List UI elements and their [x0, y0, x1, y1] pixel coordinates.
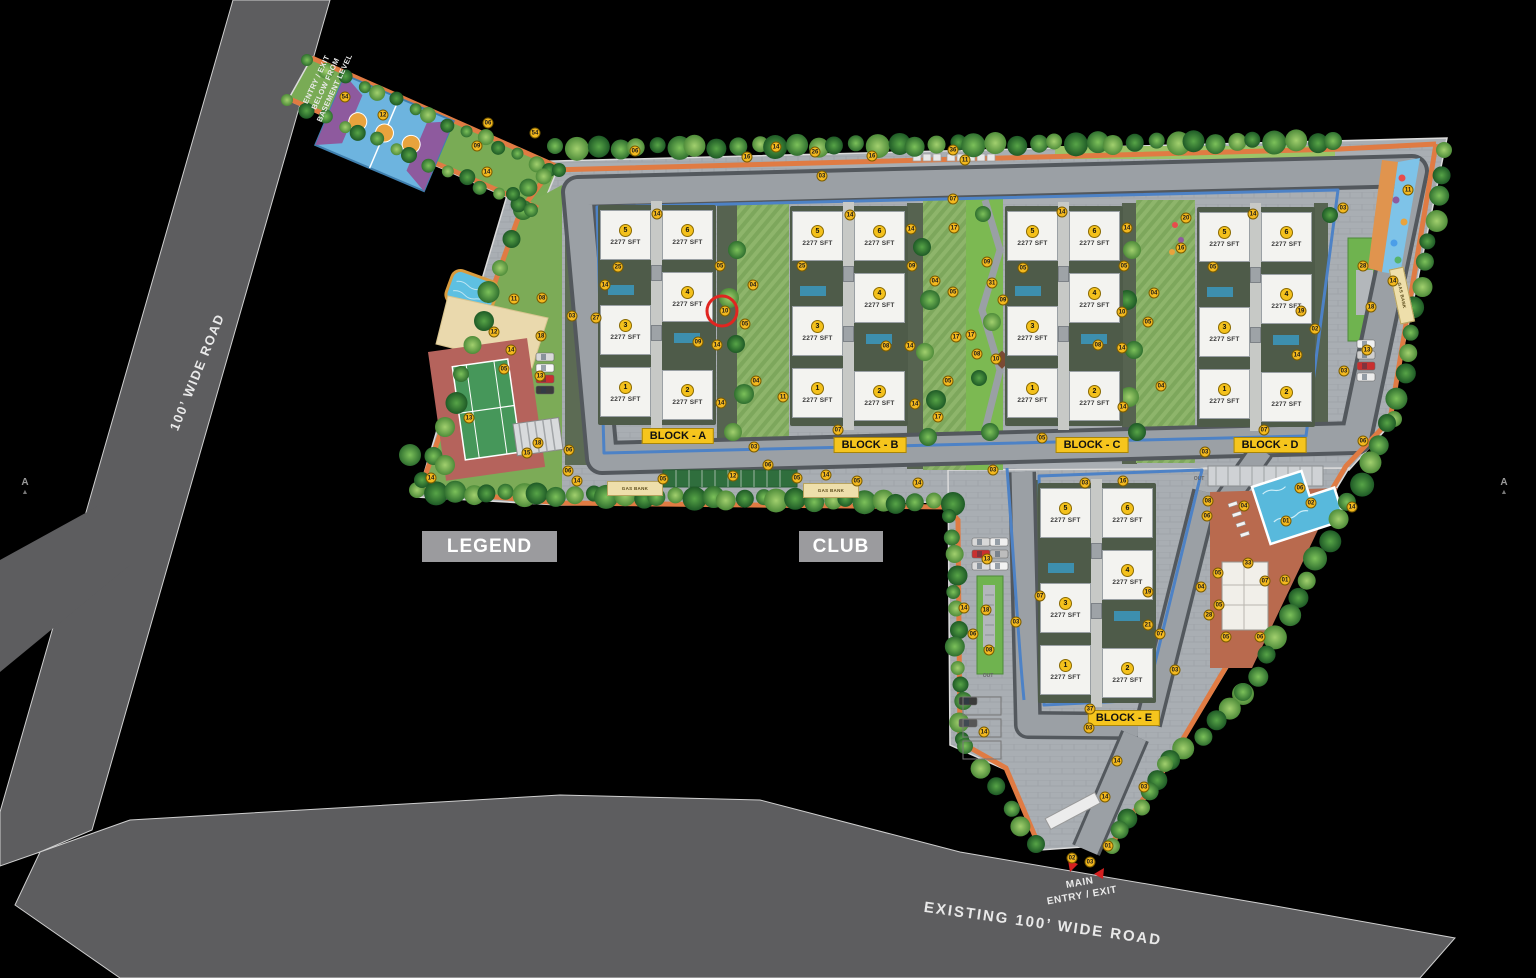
unit-area: 2277 SFT: [1271, 241, 1301, 248]
legend-marker-05: 05: [948, 287, 959, 298]
legend-marker-03: 03: [1339, 366, 1350, 377]
unit-number: 6: [1280, 226, 1293, 239]
legend-marker-03: 03: [1080, 478, 1091, 489]
legend-marker-04: 04: [1196, 582, 1207, 593]
unit-area: 2277 SFT: [1209, 241, 1239, 248]
unit-area: 2277 SFT: [1112, 579, 1142, 586]
block-A: 52277 SFT62277 SFT32277 SFT42277 SFT1227…: [598, 205, 716, 425]
unit-A-1: 12277 SFT: [600, 367, 651, 417]
lift-core: [1250, 327, 1261, 343]
legend-marker-08: 08: [881, 341, 892, 352]
unit-number: 4: [1280, 288, 1293, 301]
lift-core: [651, 265, 662, 281]
legend-marker-26: 26: [810, 147, 821, 158]
block-B: 52277 SFT62277 SFT32277 SFT42277 SFT1227…: [790, 206, 908, 426]
legend-marker-14: 14: [913, 478, 924, 489]
legend-marker-14: 14: [506, 345, 517, 356]
legend-marker-05: 05: [1119, 261, 1130, 272]
legend-marker-14: 14: [905, 341, 916, 352]
legend-marker-14: 14: [1248, 209, 1259, 220]
lift-core: [1058, 326, 1069, 342]
left-road: [0, 0, 330, 866]
legend-marker-17: 17: [951, 332, 962, 343]
unit-B-2: 22277 SFT: [854, 371, 905, 421]
legend-marker-14: 14: [1388, 276, 1399, 287]
unit-B-1: 12277 SFT: [792, 368, 843, 418]
legend-marker-04: 04: [751, 376, 762, 387]
legend-marker-06: 06: [563, 466, 574, 477]
legend-marker-05: 05: [1208, 262, 1219, 273]
legend-marker-16: 16: [867, 151, 878, 162]
unit-area: 2277 SFT: [1050, 517, 1080, 524]
legend-marker-13: 13: [1362, 345, 1373, 356]
legend-marker-21: 21: [1143, 620, 1154, 631]
legend-marker-07: 07: [1259, 425, 1270, 436]
block-corridor: [843, 202, 854, 430]
legend-marker-14: 14: [600, 280, 611, 291]
unit-number: 5: [1026, 225, 1039, 238]
legend-marker-03: 03: [1084, 723, 1095, 734]
unit-area: 2277 SFT: [1050, 612, 1080, 619]
legend-marker-17: 17: [949, 223, 960, 234]
unit-area: 2277 SFT: [1112, 677, 1142, 684]
unit-D-2: 22277 SFT: [1261, 372, 1312, 422]
highlight-circle: [706, 295, 739, 328]
legend-marker-18: 18: [536, 331, 547, 342]
legend-marker-08: 08: [1093, 340, 1104, 351]
legend-marker-09: 09: [998, 295, 1009, 306]
legend-marker-13: 13: [464, 413, 475, 424]
legend-marker-03: 03: [1200, 447, 1211, 458]
unit-area: 2277 SFT: [672, 239, 702, 246]
legend-marker-06: 06: [630, 146, 641, 157]
legend-marker-06: 06: [483, 118, 494, 129]
legend-marker-03: 03: [1085, 857, 1096, 868]
water-feature: [800, 286, 826, 296]
legend-marker-02: 02: [1067, 853, 1078, 864]
water-feature: [1207, 287, 1233, 297]
unit-number: 1: [1059, 659, 1072, 672]
unit-number: 3: [1026, 320, 1039, 333]
legend-marker-12: 12: [728, 471, 739, 482]
unit-number: 2: [1280, 386, 1293, 399]
legend-marker-03: 03: [1139, 782, 1150, 793]
legend-marker-20: 20: [1181, 213, 1192, 224]
legend-marker-06: 06: [564, 445, 575, 456]
legend-marker-11: 11: [1403, 185, 1414, 196]
unit-D-4: 42277 SFT: [1261, 274, 1312, 324]
unit-number: 4: [1121, 564, 1134, 577]
water-feature: [1114, 611, 1140, 621]
legend-marker-11: 11: [509, 294, 520, 305]
lift-core: [1091, 543, 1102, 559]
unit-area: 2277 SFT: [672, 301, 702, 308]
legend-marker-05: 05: [740, 319, 751, 330]
club-box[interactable]: CLUB: [799, 531, 883, 562]
legend-marker-04: 04: [748, 280, 759, 291]
legend-marker-25: 25: [613, 262, 624, 273]
out-label-2: OUT: [1194, 476, 1205, 482]
unit-B-4: 42277 SFT: [854, 273, 905, 323]
legend-marker-19: 19: [1296, 306, 1307, 317]
legend-marker-07: 07: [833, 425, 844, 436]
legend-marker-06: 06: [1358, 436, 1369, 447]
unit-D-6: 62277 SFT: [1261, 212, 1312, 262]
unit-number: 5: [619, 224, 632, 237]
lift-core: [843, 326, 854, 342]
legend-marker-14: 14: [652, 209, 663, 220]
unit-area: 2277 SFT: [672, 399, 702, 406]
legend-marker-06: 06: [968, 629, 979, 640]
unit-area: 2277 SFT: [610, 239, 640, 246]
unit-area: 2277 SFT: [1112, 517, 1142, 524]
lift-core: [1091, 603, 1102, 619]
unit-area: 2277 SFT: [802, 335, 832, 342]
unit-number: 5: [1218, 226, 1231, 239]
gas-bank-2: GAS BANK: [803, 483, 859, 498]
legend-marker-14: 14: [712, 340, 723, 351]
water-feature: [608, 285, 634, 295]
unit-number: 6: [1088, 225, 1101, 238]
legend-marker-03: 03: [988, 465, 999, 476]
legend-marker-16: 16: [1176, 243, 1187, 254]
unit-B-6: 62277 SFT: [854, 211, 905, 261]
legend-marker-08: 08: [1203, 496, 1214, 507]
lift-core: [843, 266, 854, 282]
legend-marker-06: 06: [1255, 632, 1266, 643]
legend-marker-14: 14: [821, 470, 832, 481]
section-marker-right: A ▲: [1500, 478, 1507, 496]
block-corridor: [1091, 479, 1102, 707]
legend-marker-05: 05: [1213, 568, 1224, 579]
legend-marker-04: 04: [1156, 381, 1167, 392]
legend-marker-27: 27: [591, 313, 602, 324]
lift-core: [651, 325, 662, 341]
legend-marker-08: 08: [972, 349, 983, 360]
legend-marker-04: 04: [1149, 288, 1160, 299]
legend-marker-08: 08: [984, 645, 995, 656]
block-corridor: [1058, 202, 1069, 430]
site-plan-base: [0, 0, 1536, 978]
unit-area: 2277 SFT: [1079, 400, 1109, 407]
unit-area: 2277 SFT: [864, 400, 894, 407]
legend-marker-03: 03: [1170, 665, 1181, 676]
unit-area: 2277 SFT: [1017, 240, 1047, 247]
unit-E-5: 52277 SFT: [1040, 488, 1091, 538]
unit-D-1: 12277 SFT: [1199, 369, 1250, 419]
out-label-1: OUT: [983, 673, 994, 679]
legend-marker-19: 19: [1143, 587, 1154, 598]
unit-area: 2277 SFT: [864, 240, 894, 247]
legend-marker-10: 10: [1117, 307, 1128, 318]
section-arrow-icon: ▲: [1500, 489, 1507, 496]
legend-marker-14: 14: [1117, 343, 1128, 354]
legend-marker-05: 05: [852, 476, 863, 487]
unit-number: 1: [619, 381, 632, 394]
legend-marker-05: 05: [1143, 317, 1154, 328]
legend-marker-25: 25: [797, 261, 808, 272]
legend-marker-04: 04: [1239, 501, 1250, 512]
unit-number: 2: [681, 384, 694, 397]
legend-marker-12: 12: [378, 110, 389, 121]
legend-marker-14: 14: [771, 142, 782, 153]
legend-marker-02: 02: [1310, 324, 1321, 335]
legend-marker-18: 18: [533, 438, 544, 449]
unit-number: 2: [1121, 662, 1134, 675]
club-building: [1222, 562, 1268, 630]
water-feature: [1273, 335, 1299, 345]
unit-area: 2277 SFT: [1017, 335, 1047, 342]
lift-core: [1058, 266, 1069, 282]
legend-marker-01: 01: [1103, 841, 1114, 852]
legend-marker-07: 07: [948, 194, 959, 205]
legend-marker-12: 12: [489, 327, 500, 338]
lawn-strip-cd: [1136, 200, 1195, 463]
legend-marker-06: 06: [763, 460, 774, 471]
unit-A-2: 22277 SFT: [662, 370, 713, 420]
legend-marker-09: 09: [693, 337, 704, 348]
unit-D-3: 32277 SFT: [1199, 307, 1250, 357]
legend-marker-14: 14: [1100, 792, 1111, 803]
block-label-D: BLOCK - D: [1234, 437, 1307, 453]
legend-marker-37: 37: [1085, 704, 1096, 715]
unit-number: 6: [1121, 502, 1134, 515]
legend-marker-05: 05: [658, 474, 669, 485]
legend-marker-09: 09: [472, 141, 483, 152]
legend-marker-14: 14: [426, 473, 437, 484]
unit-area: 2277 SFT: [1209, 336, 1239, 343]
legend-marker-06: 06: [1295, 483, 1306, 494]
legend-marker-28: 28: [1204, 610, 1215, 621]
legend-marker-13: 13: [982, 554, 993, 565]
legend-marker-54: 54: [530, 128, 541, 139]
legend-marker-14: 14: [910, 399, 921, 410]
block-D: 52277 SFT62277 SFT32277 SFT42277 SFT1227…: [1197, 207, 1315, 427]
legend-marker-16: 16: [742, 152, 753, 163]
legend-marker-02: 02: [1306, 498, 1317, 509]
unit-D-5: 52277 SFT: [1199, 212, 1250, 262]
unit-area: 2277 SFT: [802, 240, 832, 247]
legend-marker-54: 54: [340, 92, 351, 103]
unit-number: 2: [873, 385, 886, 398]
unit-area: 2277 SFT: [610, 334, 640, 341]
unit-A-5: 52277 SFT: [600, 210, 651, 260]
legend-marker-14: 14: [482, 167, 493, 178]
legend-marker-10: 10: [991, 354, 1002, 365]
legend-marker-14: 14: [1057, 207, 1068, 218]
legend-marker-16: 16: [1118, 476, 1129, 487]
block-corridor: [651, 201, 662, 429]
legend-marker-11: 11: [960, 155, 971, 166]
unit-A-3: 32277 SFT: [600, 305, 651, 355]
legend-marker-05: 05: [715, 261, 726, 272]
legend-marker-14: 14: [572, 476, 583, 487]
unit-C-1: 12277 SFT: [1007, 368, 1058, 418]
legend-marker-06: 06: [1202, 511, 1213, 522]
unit-number: 5: [811, 225, 824, 238]
unit-area: 2277 SFT: [1079, 240, 1109, 247]
club-label: CLUB: [813, 536, 870, 558]
site-plan: 100’ WIDE ROAD EXISTING 100’ WIDE ROAD E…: [0, 0, 1536, 978]
water-feature: [1015, 286, 1041, 296]
unit-number: 4: [873, 287, 886, 300]
legend-marker-14: 14: [1118, 402, 1129, 413]
legend-marker-14: 14: [845, 210, 856, 221]
unit-number: 3: [1218, 321, 1231, 334]
unit-E-3: 32277 SFT: [1040, 583, 1091, 633]
legend-marker-18: 18: [1366, 302, 1377, 313]
block-label-E: BLOCK - E: [1088, 710, 1160, 726]
legend-marker-07: 07: [1035, 591, 1046, 602]
legend-marker-03: 03: [1338, 203, 1349, 214]
legend-marker-05: 05: [943, 376, 954, 387]
water-feature: [1048, 563, 1074, 573]
legend-marker-07: 07: [1155, 629, 1166, 640]
legend-marker-13: 13: [535, 371, 546, 382]
block-label-C: BLOCK - C: [1056, 437, 1129, 453]
legend-marker-03: 03: [567, 311, 578, 322]
unit-number: 6: [681, 224, 694, 237]
legend-marker-14: 14: [959, 603, 970, 614]
legend-label: LEGEND: [447, 536, 532, 558]
bottom-road: [15, 795, 1455, 978]
legend-marker-28: 28: [1358, 261, 1369, 272]
legend-marker-03: 03: [817, 171, 828, 182]
section-marker-left: A ▲: [21, 478, 28, 496]
unit-number: 4: [681, 286, 694, 299]
unit-C-5: 52277 SFT: [1007, 211, 1058, 261]
unit-B-3: 32277 SFT: [792, 306, 843, 356]
legend-marker-04: 04: [930, 276, 941, 287]
legend-marker-05: 05: [1221, 632, 1232, 643]
legend-marker-11: 11: [778, 392, 789, 403]
legend-marker-14: 14: [1347, 502, 1358, 513]
lift-core: [1250, 267, 1261, 283]
legend-marker-33: 33: [1243, 558, 1254, 569]
block-label-B: BLOCK - B: [834, 437, 907, 453]
unit-number: 1: [811, 382, 824, 395]
legend-marker-14: 14: [1292, 350, 1303, 361]
unit-C-6: 62277 SFT: [1069, 211, 1120, 261]
block-E: 52277 SFT62277 SFT32277 SFT42277 SFT1227…: [1038, 483, 1156, 703]
legend-marker-05: 05: [499, 364, 510, 375]
legend-marker-14: 14: [1112, 756, 1123, 767]
unit-E-6: 62277 SFT: [1102, 488, 1153, 538]
unit-number: 3: [811, 320, 824, 333]
block-corridor: [1250, 203, 1261, 431]
unit-C-4: 42277 SFT: [1069, 273, 1120, 323]
legend-marker-14: 14: [979, 727, 990, 738]
unit-number: 1: [1218, 383, 1231, 396]
unit-number: 4: [1088, 287, 1101, 300]
unit-E-1: 12277 SFT: [1040, 645, 1091, 695]
unit-number: 3: [1059, 597, 1072, 610]
legend-marker-14: 14: [906, 224, 917, 235]
legend-box[interactable]: LEGEND: [422, 531, 557, 562]
unit-E-2: 22277 SFT: [1102, 648, 1153, 698]
unit-area: 2277 SFT: [1271, 401, 1301, 408]
unit-number: 3: [619, 319, 632, 332]
unit-A-6: 62277 SFT: [662, 210, 713, 260]
legend-marker-18: 18: [981, 605, 992, 616]
legend-marker-36: 36: [948, 145, 959, 156]
legend-marker-01: 01: [1280, 575, 1291, 586]
lawn-strip-ab: [737, 200, 789, 462]
unit-number: 2: [1088, 385, 1101, 398]
unit-area: 2277 SFT: [864, 302, 894, 309]
legend-marker-09: 09: [907, 261, 918, 272]
legend-marker-17: 17: [933, 412, 944, 423]
legend-marker-31: 31: [987, 278, 998, 289]
unit-number: 1: [1026, 382, 1039, 395]
legend-marker-01: 01: [1281, 516, 1292, 527]
unit-C-3: 32277 SFT: [1007, 306, 1058, 356]
unit-B-5: 52277 SFT: [792, 211, 843, 261]
unit-area: 2277 SFT: [1209, 398, 1239, 405]
legend-marker-07: 07: [1260, 576, 1271, 587]
unit-area: 2277 SFT: [1050, 674, 1080, 681]
legend-marker-14: 14: [1122, 223, 1133, 234]
legend-marker-08: 08: [537, 293, 548, 304]
unit-area: 2277 SFT: [1079, 302, 1109, 309]
unit-area: 2277 SFT: [610, 396, 640, 403]
legend-marker-05: 05: [1018, 263, 1029, 274]
legend-marker-15: 15: [522, 448, 533, 459]
legend-marker-05: 05: [1037, 433, 1048, 444]
gas-bank-1: GAS BANK: [607, 481, 663, 496]
legend-marker-03: 03: [749, 442, 760, 453]
block-C: 52277 SFT62277 SFT32277 SFT42277 SFT1227…: [1005, 206, 1123, 426]
legend-marker-09: 09: [982, 257, 993, 268]
legend-marker-03: 03: [1011, 617, 1022, 628]
unit-area: 2277 SFT: [1017, 397, 1047, 404]
legend-marker-05: 05: [792, 473, 803, 484]
block-label-A: BLOCK - A: [642, 428, 714, 444]
legend-marker-14: 14: [716, 398, 727, 409]
section-arrow-icon: ▲: [21, 489, 28, 496]
legend-marker-17: 17: [966, 330, 977, 341]
unit-area: 2277 SFT: [802, 397, 832, 404]
unit-number: 5: [1059, 502, 1072, 515]
unit-C-2: 22277 SFT: [1069, 371, 1120, 421]
unit-number: 6: [873, 225, 886, 238]
legend-marker-05: 05: [1214, 600, 1225, 611]
